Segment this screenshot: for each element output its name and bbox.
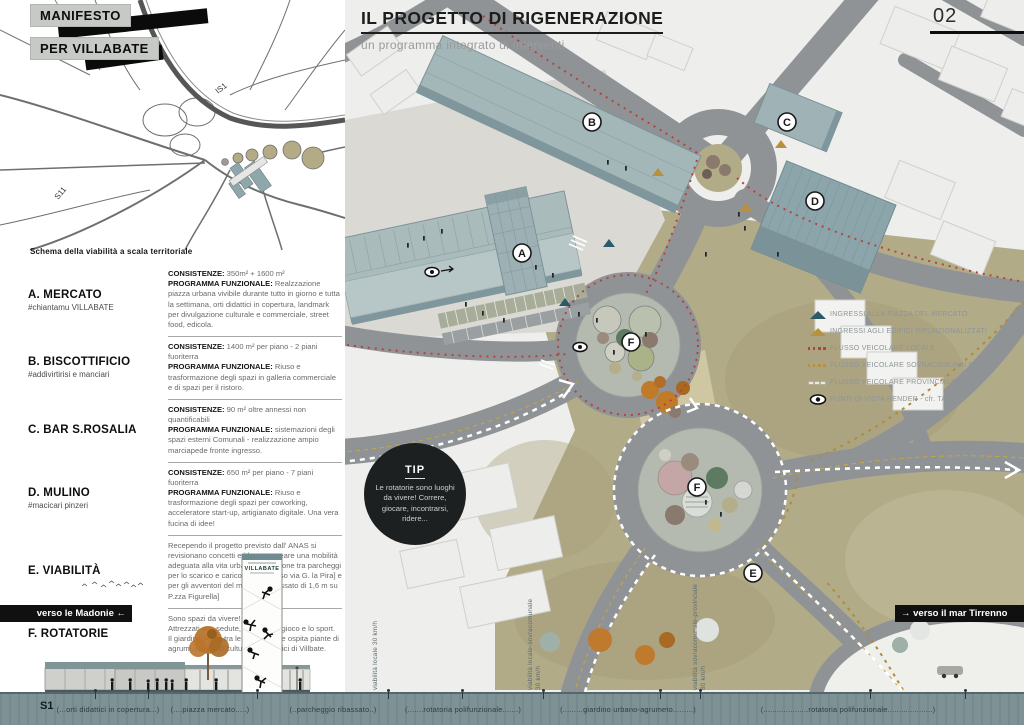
- marker-A: A: [518, 248, 526, 260]
- flusso-provinciale-icon: [806, 382, 830, 384]
- road-label-provinciale: viabilità sovracomunale-provinciale 80 k…: [692, 580, 708, 690]
- page-number-rule: [930, 31, 1024, 34]
- section-text: CONSISTENZE: 350m² + 1600 m² PROGRAMMA F…: [168, 264, 342, 336]
- section-text: CONSISTENZE: 1400 m² per piano - 2 piani…: [168, 336, 342, 399]
- sketch-caption: Schema della viabilità a scala territori…: [30, 247, 192, 256]
- programma-label: PROGRAMMA FUNZIONALE:: [168, 425, 273, 434]
- ingressi-piazza-icon: [810, 311, 826, 319]
- section-text: CONSISTENZE: 650 m² per piano - 7 piani …: [168, 462, 342, 535]
- poster-page: { "brand": {"line1": "MANIFESTO", "line2…: [0, 0, 1024, 723]
- eye-icon: [806, 394, 830, 405]
- consistenze-label: CONSISTENZE:: [168, 342, 225, 351]
- sketch-label-road: S11: [53, 185, 69, 202]
- tip-text: Le rotatorie sono luoghi da vivere! Corr…: [364, 483, 466, 524]
- marker-C: C: [783, 117, 791, 129]
- tip-title: TIP: [405, 464, 425, 479]
- section-title: D. MULINO: [28, 487, 160, 499]
- section-hashtag: #addivirtirisi e manciari: [28, 370, 160, 379]
- marker-F1: F: [628, 337, 635, 349]
- legend-row: FLUSSO VEICOLARE PROVINCIALE: [806, 374, 987, 391]
- section-text: CONSISTENZE: 90 m² oltre annessi non qua…: [168, 399, 342, 462]
- strip-segment: (.........giardino urbano-agrumeto......…: [560, 705, 696, 714]
- strip-segment: (...orti didattici in copertura...): [57, 705, 160, 714]
- brand-title-line1: MANIFESTO: [30, 4, 131, 27]
- road-label-speed: 30 km/h: [372, 621, 379, 645]
- section-strip-label: S1: [40, 700, 53, 712]
- page-number: 02: [933, 5, 957, 28]
- programma-label: PROGRAMMA FUNZIONALE:: [168, 362, 273, 371]
- roundabout-center: [694, 144, 742, 192]
- section-hashtag: #chiantamu VILLABATE: [28, 303, 160, 312]
- legend-label: PUNTI DI VISTA RENDER - cfr. TAV.03: [830, 396, 961, 403]
- strip-segment: (.......rotatoria polifunzionale.......): [405, 705, 521, 714]
- direction-label-tirreno: → verso il mar Tirrenno: [895, 605, 1024, 622]
- legend-label: FLUSSO VEICOLARE LOCALE: [830, 345, 935, 352]
- marker-B: B: [588, 117, 596, 129]
- legend-row: INGRESSI ALLA PIAZZA DEL MERCATO: [806, 306, 987, 323]
- tip-bubble: TIP Le rotatorie sono luoghi da vivere! …: [364, 443, 466, 545]
- section-row-bar: C. BAR S.ROSALIA CONSISTENZE: 90 m² oltr…: [28, 399, 342, 462]
- marker-E: E: [749, 568, 756, 580]
- sketch-roundabouts: [233, 141, 324, 169]
- legend-label: INGRESSI ALLA PIAZZA DEL MERCATO: [830, 311, 967, 318]
- section-title: C. BAR S.ROSALIA: [28, 424, 160, 436]
- section-title: B. BISCOTTIFICIO: [28, 356, 160, 368]
- direction-label-madonie: verso le Madonie ←: [0, 605, 132, 622]
- flusso-sovracomunale-icon: [806, 364, 830, 367]
- page-title: IL PROGETTO DI RIGENERAZIONE: [361, 8, 663, 34]
- road-label-name: viabilità locale-sovracomunale: [527, 599, 534, 690]
- road-label-name: viabilità locale: [372, 647, 379, 690]
- strip-segment: (....piazza mercato.....): [171, 705, 250, 714]
- legend-row: INGRESSI AGLI EDIFICI RIFUNZIONALIZZATI: [806, 323, 987, 340]
- tower-label: VILLABATE: [245, 566, 280, 572]
- consistenze-label: CONSISTENZE:: [168, 405, 225, 414]
- consistenze-label: CONSISTENZE:: [168, 468, 225, 477]
- legend-label: INGRESSI AGLI EDIFICI RIFUNZIONALIZZATI: [830, 328, 987, 335]
- flusso-locale-icon: [806, 347, 830, 350]
- section-title: A. MERCATO: [28, 289, 160, 301]
- road-label-speed: 30 km/h: [535, 666, 542, 690]
- road-label-speed: 80 km/h: [700, 666, 707, 690]
- section-row-mulino: D. MULINO #macicari pinzeri CONSISTENZE:…: [28, 462, 342, 535]
- marker-F2: F: [694, 482, 701, 494]
- legend-row: FLUSSO VEICOLARE LOCALE: [806, 340, 987, 357]
- legend-label: FLUSSO VEICOLARE SOVRACOMUNALE: [830, 362, 974, 369]
- section-row-biscottificio: B. BISCOTTIFICIO #addivirtirisi e mancia…: [28, 336, 342, 399]
- legend-label: FLUSSO VEICOLARE PROVINCIALE: [830, 379, 956, 386]
- section-hashtag: #macicari pinzeri: [28, 501, 160, 510]
- map-legend: INGRESSI ALLA PIAZZA DEL MERCATO INGRESS…: [806, 306, 987, 408]
- programma-label: PROGRAMMA FUNZIONALE:: [168, 279, 273, 288]
- page-subtitle: un programma integrato di interventi: [361, 38, 663, 52]
- sketch-label-highway: IS1: [214, 81, 229, 96]
- consistenze-value: 350m² + 1600 m²: [227, 269, 285, 278]
- page-header: IL PROGETTO DI RIGENERAZIONE un programm…: [361, 8, 663, 52]
- section-strip: S1 (...orti didattici in copertura...) (…: [0, 692, 1024, 725]
- road-label-sovracomunale: viabilità locale-sovracomunale 30 km/h: [527, 596, 543, 690]
- road-label-locale: viabilità locale 30 km/h: [372, 610, 380, 690]
- strip-segment: (....................rotatoria polifunzi…: [761, 705, 936, 714]
- section-row-mercato: A. MERCATO #chiantamu VILLABATE CONSISTE…: [28, 264, 342, 336]
- marker-D: D: [811, 196, 819, 208]
- legend-row: PUNTI DI VISTA RENDER - cfr. TAV.03: [806, 391, 987, 408]
- villabate-tower: VILLABATE: [242, 554, 282, 692]
- programma-label: PROGRAMMA FUNZIONALE:: [168, 488, 273, 497]
- ingressi-edifici-icon: [810, 328, 826, 336]
- birds-flock: [82, 581, 143, 587]
- consistenze-label: CONSISTENZE:: [168, 269, 225, 278]
- brand-title-line2: PER VILLABATE: [30, 37, 159, 60]
- legend-row: FLUSSO VEICOLARE SOVRACOMUNALE: [806, 357, 987, 374]
- strip-segment: (..parcheggio ribassato..): [290, 705, 377, 714]
- road-label-name: viabilità sovracomunale-provinciale: [692, 584, 699, 690]
- viewpoint-eye-icon: [573, 343, 587, 352]
